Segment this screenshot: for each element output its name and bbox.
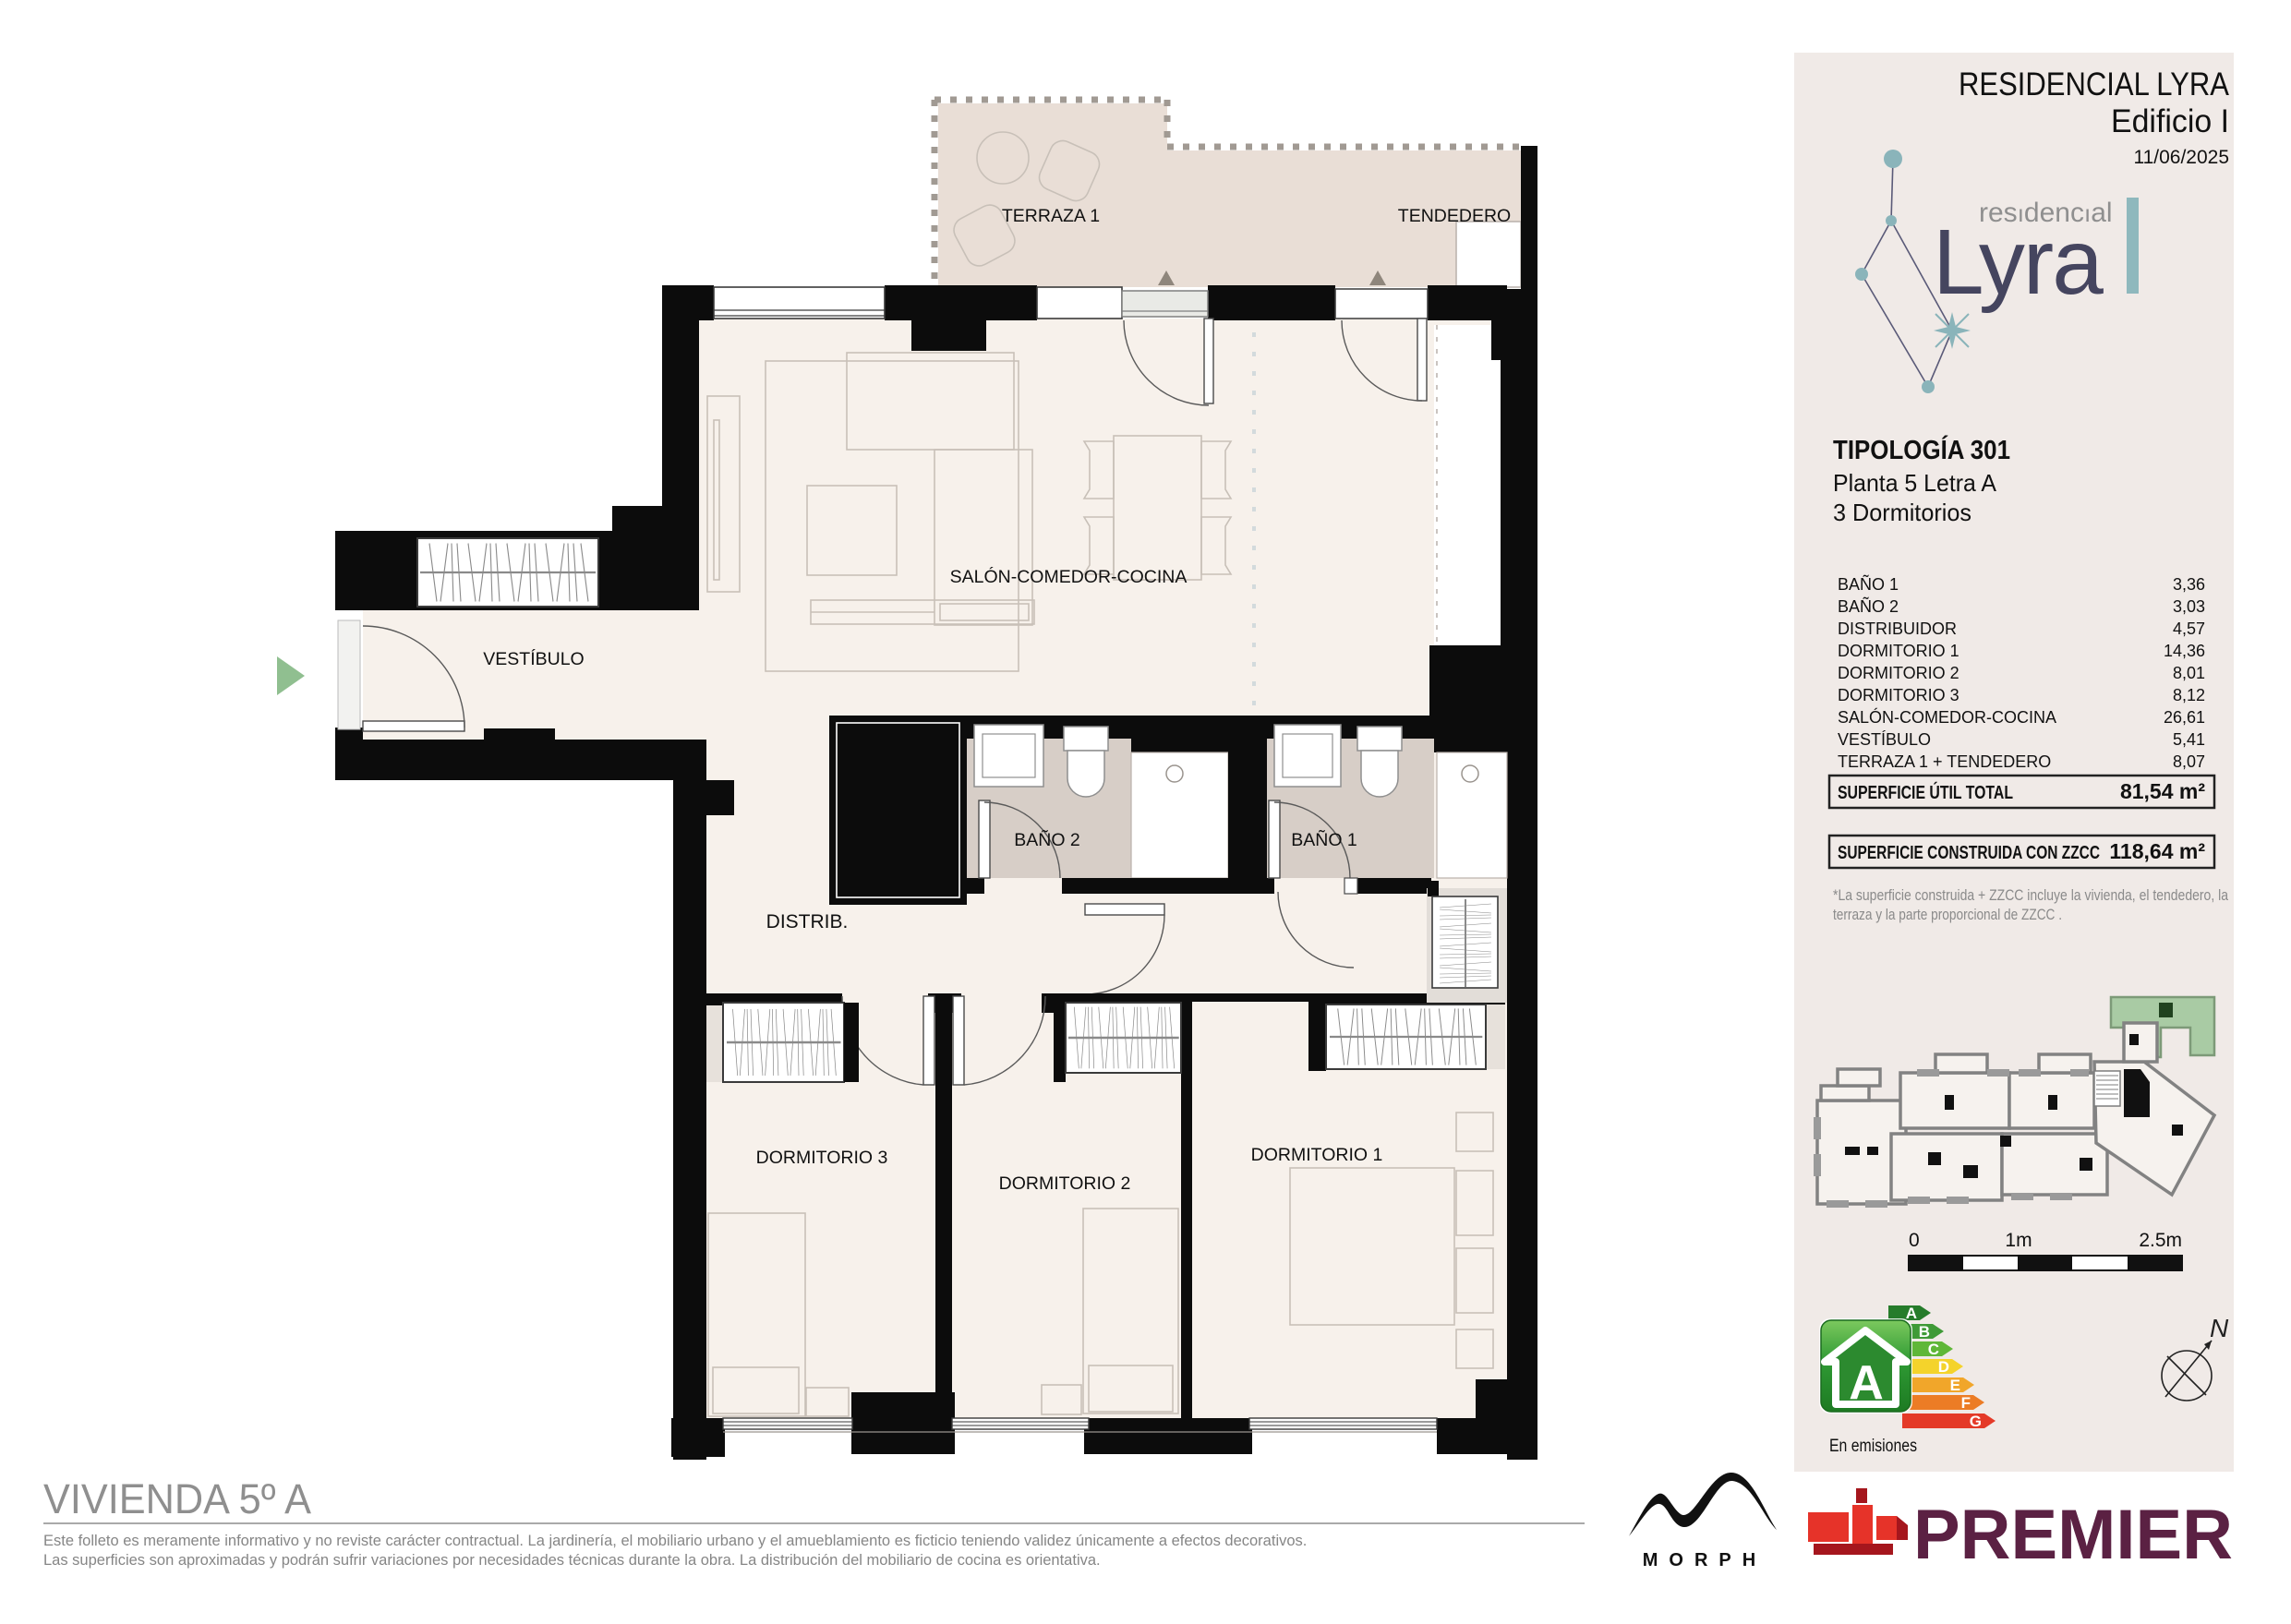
svg-text:N: N bbox=[2210, 1314, 2229, 1342]
svg-text:8,07: 8,07 bbox=[2173, 752, 2205, 771]
svg-text:14,36: 14,36 bbox=[2164, 642, 2205, 660]
svg-text:26,61: 26,61 bbox=[2164, 708, 2205, 727]
svg-text:3 Dormitorios: 3 Dormitorios bbox=[1833, 499, 1971, 526]
svg-text:BAÑO 1: BAÑO 1 bbox=[1291, 828, 1357, 850]
svg-text:G: G bbox=[1970, 1413, 1982, 1430]
svg-text:RESIDENCIAL LYRA: RESIDENCIAL LYRA bbox=[1959, 66, 2230, 102]
svg-text:SALÓN-COMEDOR-COCINA: SALÓN-COMEDOR-COCINA bbox=[950, 566, 1188, 587]
svg-text:1m: 1m bbox=[2005, 1230, 2032, 1251]
svg-text:Las superficies son aproximada: Las superficies son aproximadas y podrán… bbox=[43, 1552, 1101, 1569]
svg-text:118,64 m²: 118,64 m² bbox=[2109, 839, 2205, 863]
svg-text:D: D bbox=[1938, 1358, 1949, 1376]
svg-text:11/06/2025: 11/06/2025 bbox=[2133, 147, 2229, 168]
svg-text:SALÓN-COMEDOR-COCINA: SALÓN-COMEDOR-COCINA bbox=[1838, 707, 2056, 727]
svg-text:Planta 5 Letra A: Planta 5 Letra A bbox=[1833, 469, 1997, 497]
svg-text:E: E bbox=[1950, 1377, 1960, 1394]
svg-text:3,36: 3,36 bbox=[2173, 575, 2205, 594]
svg-text:TENDEDERO: TENDEDERO bbox=[1398, 206, 1511, 226]
svg-text:BAÑO 2: BAÑO 2 bbox=[1014, 828, 1080, 850]
svg-text:VIVIENDA 5º A: VIVIENDA 5º A bbox=[43, 1475, 311, 1522]
svg-text:SUPERFICIE ÚTIL TOTAL: SUPERFICIE ÚTIL TOTAL bbox=[1838, 781, 2013, 803]
svg-text:F: F bbox=[1961, 1394, 1971, 1412]
svg-text:VESTÍBULO: VESTÍBULO bbox=[1838, 730, 1931, 749]
svg-text:Lyra: Lyra bbox=[1933, 211, 2104, 314]
svg-text:terraza y la parte proporciona: terraza y la parte proporcional de ZZCC … bbox=[1833, 907, 2062, 923]
svg-text:8,12: 8,12 bbox=[2173, 686, 2205, 704]
svg-text:2.5m: 2.5m bbox=[2139, 1230, 2182, 1251]
svg-text:4,57: 4,57 bbox=[2173, 620, 2205, 638]
svg-text:C: C bbox=[1928, 1341, 1939, 1358]
svg-text:PREMIER: PREMIER bbox=[1913, 1496, 2233, 1574]
svg-text:Edificio I: Edificio I bbox=[2111, 103, 2229, 139]
svg-text:DORMITORIO 3: DORMITORIO 3 bbox=[756, 1148, 888, 1168]
svg-text:En emisiones: En emisiones bbox=[1829, 1437, 1917, 1456]
svg-text:MORPH: MORPH bbox=[1643, 1550, 1766, 1570]
svg-text:8,01: 8,01 bbox=[2173, 664, 2205, 682]
svg-text:DISTRIB.: DISTRIB. bbox=[766, 911, 849, 932]
svg-text:TERRAZA 1: TERRAZA 1 bbox=[1002, 206, 1100, 226]
svg-text:BAÑO 2: BAÑO 2 bbox=[1838, 596, 1899, 616]
svg-text:DISTRIBUIDOR: DISTRIBUIDOR bbox=[1838, 620, 1957, 638]
svg-text:A: A bbox=[1849, 1356, 1884, 1410]
svg-text:5,41: 5,41 bbox=[2173, 730, 2205, 749]
svg-text:DORMITORIO 3: DORMITORIO 3 bbox=[1838, 686, 1959, 704]
svg-text:*La superficie construida + ZZ: *La superficie construida + ZZCC incluye… bbox=[1833, 887, 2229, 904]
svg-text:DORMITORIO 2: DORMITORIO 2 bbox=[1838, 664, 1959, 682]
svg-text:TERRAZA 1 + TENDEDERO: TERRAZA 1 + TENDEDERO bbox=[1838, 752, 2051, 771]
svg-text:Este folleto es meramente info: Este folleto es meramente informativo y … bbox=[43, 1533, 1307, 1549]
svg-text:DORMITORIO 2: DORMITORIO 2 bbox=[999, 1173, 1131, 1194]
svg-text:0: 0 bbox=[1909, 1230, 1920, 1251]
svg-text:A: A bbox=[1906, 1305, 1917, 1322]
svg-text:TIPOLOGÍA 301: TIPOLOGÍA 301 bbox=[1833, 434, 2010, 465]
svg-text:DORMITORIO 1: DORMITORIO 1 bbox=[1838, 642, 1959, 660]
svg-text:3,03: 3,03 bbox=[2173, 597, 2205, 616]
svg-text:SUPERFICIE CONSTRUIDA CON ZZCC: SUPERFICIE CONSTRUIDA CON ZZCC bbox=[1838, 843, 2100, 863]
svg-text:81,54 m²: 81,54 m² bbox=[2120, 779, 2205, 803]
svg-text:BAÑO 1: BAÑO 1 bbox=[1838, 574, 1899, 594]
svg-text:B: B bbox=[1919, 1323, 1930, 1341]
svg-text:DORMITORIO 1: DORMITORIO 1 bbox=[1251, 1145, 1383, 1165]
svg-text:VESTÍBULO: VESTÍBULO bbox=[483, 648, 584, 669]
